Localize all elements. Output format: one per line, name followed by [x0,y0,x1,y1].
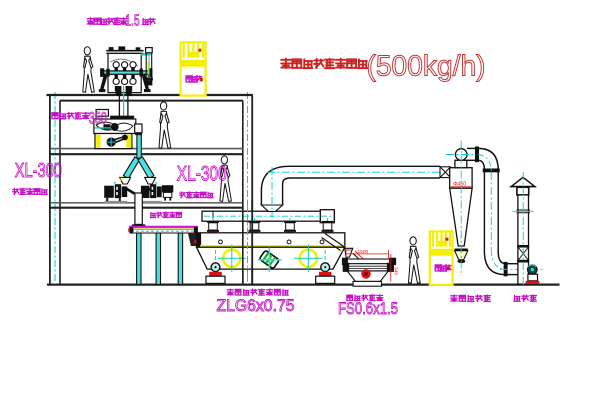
svg-text:ZLG6x0.75: ZLG6x0.75 [217,297,295,315]
svg-text:1.5: 1.5 [125,12,140,29]
svg-text:1500: 1500 [358,249,369,255]
svg-text:XL-300: XL-300 [15,160,62,182]
svg-text:350: 350 [89,110,107,128]
svg-text:FS0.6x1.5: FS0.6x1.5 [338,300,398,318]
svg-text:Φ450: Φ450 [453,182,466,188]
svg-text:(500kg/h): (500kg/h) [367,50,486,82]
svg-text:345: 345 [393,267,399,275]
svg-text:XL-300: XL-300 [177,163,227,186]
